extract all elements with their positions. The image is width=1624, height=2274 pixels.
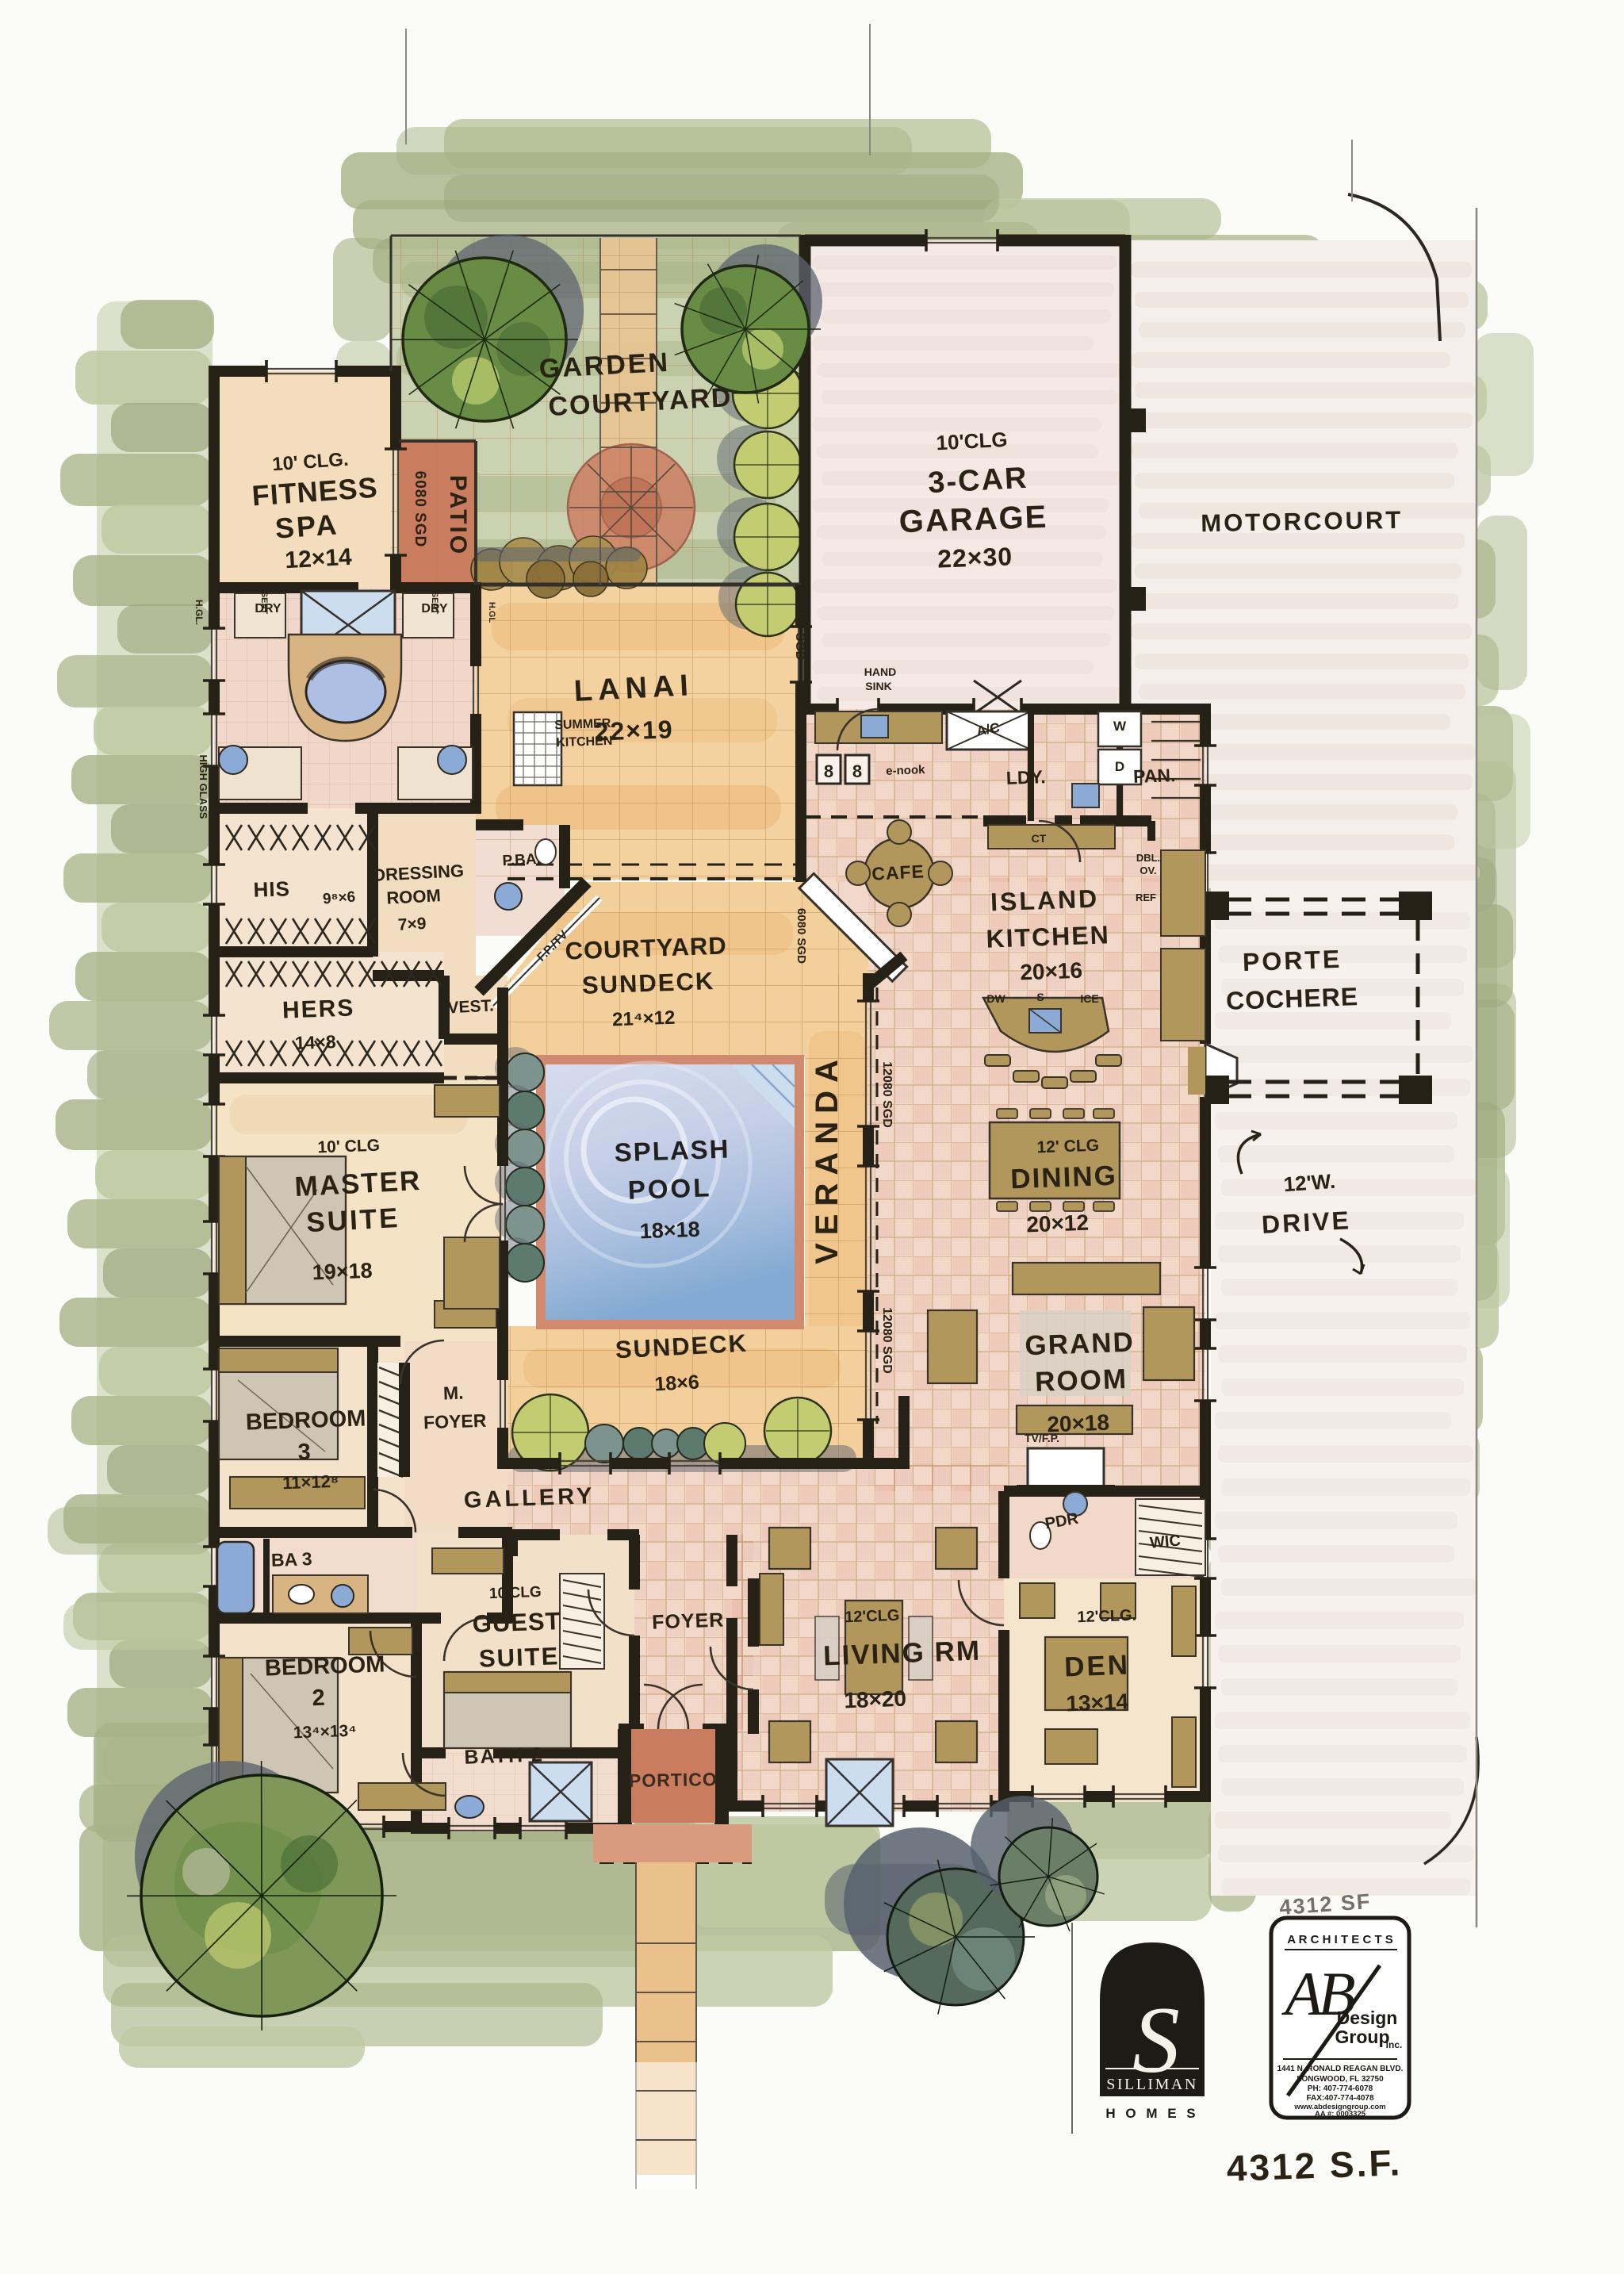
- svg-text:20×16: 20×16: [1020, 958, 1083, 985]
- svg-text:8: 8: [824, 761, 833, 781]
- svg-text:DW: DW: [986, 992, 1005, 1005]
- svg-text:M.: M.: [442, 1382, 463, 1404]
- svg-text:ROOM: ROOM: [386, 885, 442, 908]
- svg-text:DRIVE: DRIVE: [1261, 1206, 1352, 1239]
- svg-text:PORTICO: PORTICO: [629, 1769, 718, 1791]
- svg-text:POOL: POOL: [627, 1172, 712, 1205]
- svg-text:18×6: 18×6: [654, 1371, 700, 1396]
- svg-text:SPLASH: SPLASH: [614, 1133, 730, 1167]
- svg-text:FOYER: FOYER: [423, 1410, 487, 1433]
- svg-text:3: 3: [297, 1440, 311, 1466]
- svg-text:HAND: HAND: [864, 665, 896, 678]
- svg-text:CAFE: CAFE: [871, 861, 925, 884]
- svg-text:GARAGE: GARAGE: [898, 500, 1048, 540]
- svg-text:6080 SGD: 6080 SGD: [793, 601, 806, 661]
- svg-text:7×9: 7×9: [397, 915, 427, 934]
- svg-text:H.GL: H.GL: [487, 602, 496, 623]
- svg-text:FOYER: FOYER: [652, 1609, 725, 1633]
- svg-text:H O M E S: H O M E S: [1105, 2106, 1198, 2121]
- svg-text:PATIO: PATIO: [445, 475, 471, 556]
- svg-text:P.BA.: P.BA.: [502, 851, 541, 869]
- svg-text:19×18: 19×18: [312, 1259, 373, 1285]
- svg-text:GUEST: GUEST: [472, 1607, 561, 1638]
- svg-text:HERS: HERS: [282, 995, 354, 1023]
- svg-text:FAX:407-774-4078: FAX:407-774-4078: [1306, 2094, 1373, 2103]
- svg-text:KITCHEN: KITCHEN: [556, 734, 613, 750]
- svg-text:TV/F.P.: TV/F.P.: [1025, 1432, 1059, 1444]
- svg-text:1441 N. RONALD REAGAN BLVD.: 1441 N. RONALD REAGAN BLVD.: [1277, 2065, 1404, 2073]
- svg-text:REF: REF: [1136, 892, 1156, 903]
- svg-text:Group: Group: [1335, 2027, 1390, 2047]
- svg-text:DINING: DINING: [1010, 1160, 1118, 1195]
- svg-text:13⁴×13⁴: 13⁴×13⁴: [293, 1722, 358, 1743]
- svg-text:PH: 407-774-6078: PH: 407-774-6078: [1308, 2084, 1373, 2093]
- svg-text:3-CAR: 3-CAR: [927, 462, 1028, 500]
- svg-text:A R C H I T E C T S: A R C H I T E C T S: [1287, 1933, 1393, 1946]
- svg-text:SUMMER: SUMMER: [554, 717, 611, 732]
- svg-text:CT: CT: [1032, 832, 1047, 845]
- svg-text:HIGH GLASS: HIGH GLASS: [197, 755, 209, 819]
- svg-text:VEST.: VEST.: [447, 996, 494, 1017]
- svg-text:8: 8: [852, 761, 862, 781]
- svg-text:GALLERY: GALLERY: [463, 1483, 596, 1513]
- svg-text:11×12⁸: 11×12⁸: [282, 1471, 339, 1493]
- svg-text:12'CLG: 12'CLG: [845, 1607, 900, 1626]
- svg-text:MASTER: MASTER: [294, 1165, 423, 1202]
- svg-text:SUNDECK: SUNDECK: [581, 967, 714, 999]
- svg-text:22×30: 22×30: [937, 542, 1013, 573]
- svg-text:SINK: SINK: [865, 680, 891, 692]
- svg-text:LDY.: LDY.: [1005, 766, 1046, 788]
- svg-text:DRY: DRY: [421, 602, 448, 615]
- svg-text:12' CLG: 12' CLG: [1036, 1137, 1099, 1157]
- svg-text:SILLIMAN: SILLIMAN: [1106, 2076, 1198, 2093]
- svg-text:12'CLG.: 12'CLG.: [1077, 1607, 1137, 1627]
- svg-text:6080 SGD: 6080 SGD: [795, 908, 808, 964]
- svg-text:H.GL.: H.GL.: [193, 600, 205, 625]
- svg-text:W: W: [1113, 719, 1127, 734]
- svg-text:LONGWOOD, FL 32750: LONGWOOD, FL 32750: [1297, 2075, 1384, 2084]
- svg-text:12'W.: 12'W.: [1283, 1169, 1336, 1196]
- svg-text:PORTE: PORTE: [1242, 945, 1342, 976]
- svg-text:DEN: DEN: [1063, 1650, 1130, 1683]
- svg-text:S: S: [1036, 991, 1044, 1003]
- svg-text:18×18: 18×18: [639, 1218, 700, 1244]
- svg-text:WIC: WIC: [1149, 1532, 1182, 1551]
- svg-text:MOTORCOURT: MOTORCOURT: [1201, 506, 1404, 537]
- svg-text:OV.: OV.: [1139, 865, 1156, 876]
- svg-text:20×12: 20×12: [1026, 1210, 1090, 1237]
- svg-text:PAN.: PAN.: [1133, 765, 1176, 787]
- svg-text:2: 2: [312, 1685, 325, 1712]
- svg-text:10'CLG: 10'CLG: [489, 1584, 542, 1602]
- svg-text:LIVING RM: LIVING RM: [823, 1636, 982, 1672]
- svg-text:HIS: HIS: [253, 876, 290, 902]
- svg-text:LANAI: LANAI: [573, 669, 695, 708]
- svg-text:13×14: 13×14: [1066, 1689, 1129, 1716]
- svg-text:4312 S.F.: 4312 S.F.: [1226, 2142, 1403, 2189]
- svg-text:12×14: 12×14: [285, 544, 353, 573]
- svg-text:12080 SGD: 12080 SGD: [880, 1307, 894, 1374]
- svg-text:Inc.: Inc.: [1386, 2039, 1403, 2050]
- svg-text:ISLAND: ISLAND: [990, 884, 1099, 917]
- svg-text:D: D: [1115, 759, 1124, 774]
- svg-text:6080 SGD: 6080 SGD: [412, 471, 428, 548]
- svg-text:12080 SGD: 12080 SGD: [880, 1061, 894, 1128]
- svg-text:9⁸×6: 9⁸×6: [322, 889, 356, 908]
- svg-text:AA #: 0003325: AA #: 0003325: [1315, 2110, 1366, 2119]
- svg-text:KITCHEN: KITCHEN: [986, 920, 1110, 953]
- svg-text:e-nook: e-nook: [886, 763, 925, 778]
- svg-text:BEDROOM: BEDROOM: [245, 1405, 366, 1435]
- svg-text:14×8: 14×8: [294, 1031, 336, 1053]
- svg-text:BATH 2: BATH 2: [464, 1743, 544, 1768]
- svg-text:VERANDA: VERANDA: [810, 1052, 845, 1264]
- svg-text:ICE: ICE: [1080, 992, 1098, 1005]
- svg-text:21⁴×12: 21⁴×12: [612, 1007, 676, 1031]
- svg-text:COURTYARD: COURTYARD: [565, 931, 727, 964]
- svg-text:COCHERE: COCHERE: [1226, 982, 1359, 1015]
- svg-text:BA 3: BA 3: [271, 1548, 312, 1570]
- svg-text:10' CLG: 10' CLG: [317, 1137, 380, 1157]
- svg-text:SPA: SPA: [274, 508, 340, 545]
- svg-text:ROOM: ROOM: [1035, 1363, 1128, 1398]
- svg-text:DRY: DRY: [255, 602, 282, 615]
- svg-text:Design: Design: [1337, 2007, 1398, 2028]
- svg-text:BEDROOM: BEDROOM: [264, 1651, 385, 1681]
- svg-text:SUITE: SUITE: [305, 1202, 400, 1238]
- svg-text:10'CLG: 10'CLG: [936, 428, 1008, 455]
- svg-text:SUITE: SUITE: [478, 1642, 559, 1673]
- svg-text:18×20: 18×20: [844, 1686, 907, 1713]
- svg-text:DBL.: DBL.: [1136, 852, 1160, 864]
- svg-text:GRAND: GRAND: [1025, 1327, 1136, 1362]
